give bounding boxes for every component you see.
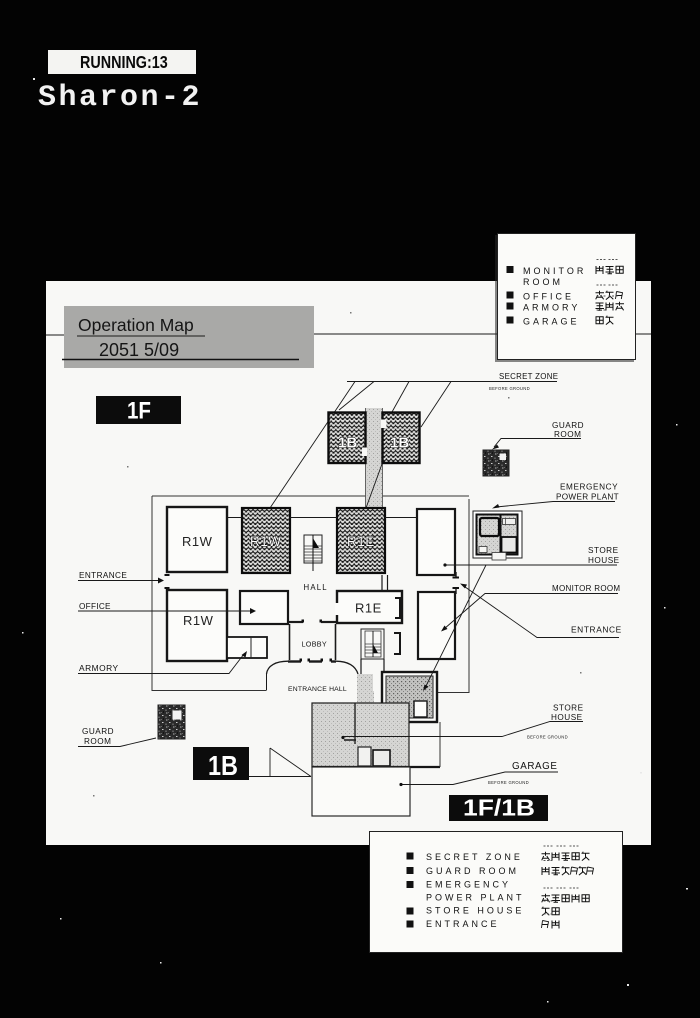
- svg-text:GARAGE: GARAGE: [523, 317, 580, 327]
- svg-text:ROOM: ROOM: [523, 277, 563, 287]
- svg-text:OFFICE: OFFICE: [523, 292, 574, 302]
- svg-text:STORE HOUSE: STORE HOUSE: [426, 906, 524, 916]
- svg-text:ENTRANCE: ENTRANCE: [426, 919, 500, 929]
- svg-text:GUARD ROOM: GUARD ROOM: [426, 866, 519, 876]
- svg-text:ARMORY: ARMORY: [523, 303, 580, 313]
- svg-text:EMERGENCY: EMERGENCY: [426, 880, 511, 890]
- svg-text:POWER PLANT: POWER PLANT: [426, 893, 525, 903]
- svg-text:SECRET ZONE: SECRET ZONE: [426, 852, 523, 862]
- svg-text:MONITOR: MONITOR: [523, 266, 586, 276]
